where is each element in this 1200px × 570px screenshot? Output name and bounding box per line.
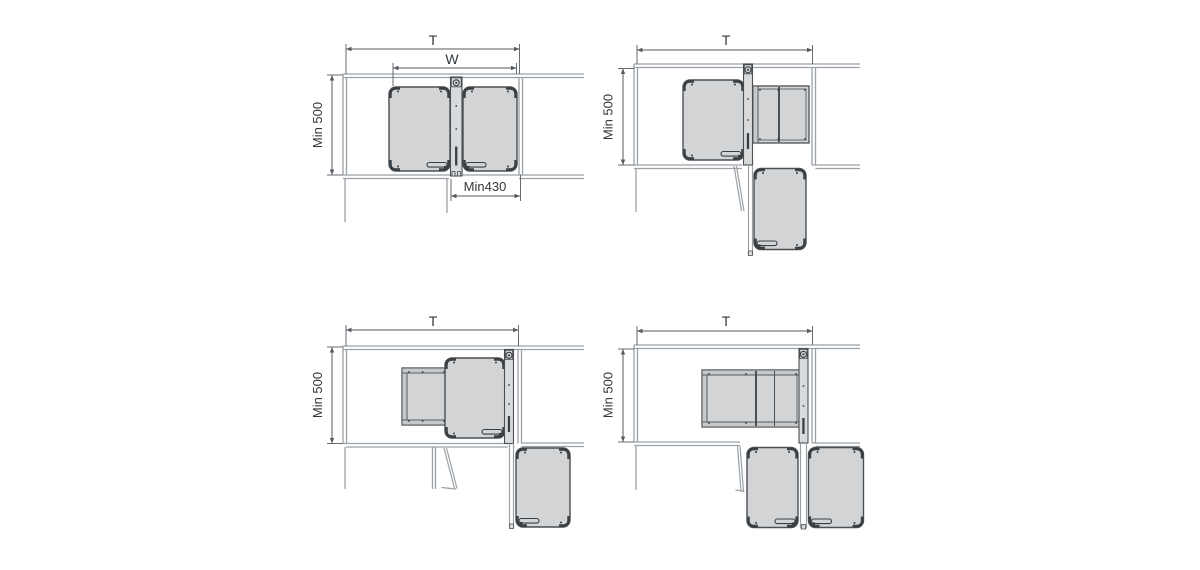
arrowhead-left-icon <box>451 194 457 198</box>
fixing-dot <box>759 138 761 140</box>
dimension-Min500: Min 500 <box>310 75 343 175</box>
tray-front-view <box>445 358 505 438</box>
tray-handle-stub <box>738 155 740 158</box>
tray-rim-band <box>753 86 758 143</box>
dimension-label: Min 500 <box>310 102 325 148</box>
tray-body <box>753 86 809 143</box>
fixing-dot <box>560 522 562 524</box>
tray-front-view <box>747 448 798 528</box>
tray-front-view <box>809 448 864 528</box>
tray-handle-stub <box>758 244 760 247</box>
pivot-center-dot <box>508 354 510 356</box>
tray-handle-stub <box>792 522 794 525</box>
tray-side-view <box>702 370 800 427</box>
arrowhead-bottom-icon <box>621 437 625 443</box>
arrowhead-right-icon <box>807 48 813 52</box>
dimension-label: Min 500 <box>601 94 616 140</box>
fixing-dot <box>455 105 457 107</box>
pivot-center-dot <box>747 69 749 71</box>
rail-body <box>744 64 753 165</box>
dimension-label: T <box>429 32 438 48</box>
fixing-dot <box>747 119 749 121</box>
fixing-dot <box>745 422 747 424</box>
fixing-dot <box>795 373 797 375</box>
tray-front-view <box>683 80 744 160</box>
rail-extension-arm <box>801 443 807 529</box>
tray-body <box>747 448 798 528</box>
rail-foot <box>452 172 455 177</box>
tray-body <box>754 169 806 250</box>
arrowhead-left-icon <box>637 329 643 333</box>
fixing-dot <box>755 522 757 524</box>
arrowhead-left-icon <box>637 48 643 52</box>
pivot-rail <box>744 64 753 256</box>
tray-body <box>402 368 448 425</box>
rail-extension-foot <box>802 525 806 530</box>
open-door-line <box>442 448 458 489</box>
arrowhead-left-icon <box>346 47 352 51</box>
panel-top-right: TMin 500 <box>601 32 861 256</box>
open-door-line <box>736 446 745 492</box>
rail-foot <box>458 172 461 177</box>
fixing-dot <box>455 128 457 130</box>
fixing-dot <box>508 384 510 386</box>
panel-top-left: TWMin 500Min430 <box>310 32 584 222</box>
fixing-dot <box>453 433 455 435</box>
fixing-dot <box>777 138 779 140</box>
fixing-dot <box>796 172 798 174</box>
fixing-dot <box>397 91 399 93</box>
arrowhead-top-icon <box>330 347 334 353</box>
fixing-dot <box>508 403 510 405</box>
fixing-dot <box>817 451 819 453</box>
dimension-T: T <box>346 313 519 346</box>
fixing-dot <box>788 451 790 453</box>
fixing-dot <box>691 155 693 157</box>
fixing-dot <box>762 172 764 174</box>
dimension-label: T <box>429 313 438 329</box>
fixing-dot <box>734 84 736 86</box>
rail-extension-arm <box>510 444 514 529</box>
corner-unit-installation-diagram: TWMin 500Min430TMin 500TMin 500TMin 500 <box>0 0 1200 570</box>
tray-body <box>683 80 744 160</box>
tray-handle-stub <box>444 166 446 169</box>
arrowhead-top-icon <box>330 75 334 81</box>
fixing-dot <box>422 371 424 373</box>
fixing-dot <box>777 89 779 91</box>
fixing-dot <box>507 91 509 93</box>
fixing-dot <box>795 422 797 424</box>
fixing-dot <box>691 84 693 86</box>
diagram-line <box>447 448 458 489</box>
arrowhead-bottom-icon <box>330 170 334 176</box>
fixing-dot <box>408 420 410 422</box>
tray-front-view <box>516 448 570 527</box>
tray-body <box>445 358 505 438</box>
fixing-dot <box>796 244 798 246</box>
tray-body <box>389 87 450 171</box>
tray-handle-stub <box>499 433 501 436</box>
tray-body <box>516 448 570 527</box>
arrowhead-left-icon <box>346 328 352 332</box>
tray-handle-stub <box>467 166 469 169</box>
dimension-label: T <box>722 32 731 48</box>
tray-body <box>809 448 864 528</box>
fixing-dot <box>453 362 455 364</box>
fixing-dot <box>854 522 856 524</box>
panel-bottom-right: TMin 500 <box>601 313 864 529</box>
arrowhead-bottom-icon <box>621 160 625 166</box>
fixing-dot <box>804 89 806 91</box>
rail-slot <box>508 416 510 432</box>
figure: TWMin 500Min430TMin 500TMin 500TMin 500 <box>0 0 1200 570</box>
tray-body <box>463 87 517 171</box>
open-door-line <box>734 166 744 211</box>
fixing-dot <box>408 371 410 373</box>
arrowhead-bottom-icon <box>330 438 334 444</box>
fixing-dot <box>747 98 749 100</box>
dimension-Min500: Min 500 <box>310 347 343 444</box>
fixing-dot <box>708 373 710 375</box>
tray-side-view <box>402 368 448 425</box>
fixing-dot <box>759 89 761 91</box>
tray-handle-stub <box>813 522 815 525</box>
dimension-label: W <box>445 51 459 67</box>
dimension-Min500: Min 500 <box>601 349 635 442</box>
panel-bottom-left: TMin 500 <box>310 313 584 529</box>
dimension-T: T <box>637 313 813 345</box>
tray-front-view <box>389 87 450 171</box>
pivot-center-dot <box>455 82 457 84</box>
dimension-label: T <box>722 313 731 329</box>
tray-rim-band <box>702 370 800 375</box>
fixing-dot <box>524 452 526 454</box>
tray-side-view <box>753 86 809 143</box>
rail-slot <box>747 133 749 149</box>
arrowhead-top-icon <box>621 349 625 355</box>
fixing-dot <box>440 91 442 93</box>
arrowhead-right-icon <box>511 66 517 70</box>
fixing-dot <box>854 451 856 453</box>
arrowhead-right-icon <box>515 194 521 198</box>
dimension-Min500: Min 500 <box>601 69 635 166</box>
fixing-dot <box>397 166 399 168</box>
diagram-line <box>444 448 455 489</box>
rail-extension-arm <box>749 165 753 256</box>
pivot-rail <box>505 350 514 529</box>
fixing-dot <box>495 362 497 364</box>
dimension-label: Min430 <box>464 179 507 194</box>
pivot-rail <box>799 349 808 530</box>
arrowhead-right-icon <box>514 47 520 51</box>
rail-slot <box>802 418 804 434</box>
dimension-label: Min 500 <box>601 372 616 418</box>
dimension-Min430: Min430 <box>451 175 521 201</box>
rail-slot <box>455 147 457 166</box>
tray-rim-band <box>702 370 707 427</box>
tray-handle-stub <box>520 522 522 525</box>
fixing-dot <box>471 91 473 93</box>
fixing-dot <box>745 373 747 375</box>
arrowhead-right-icon <box>807 329 813 333</box>
arrowhead-top-icon <box>621 69 625 75</box>
fixing-dot <box>803 405 805 407</box>
fixing-dot <box>803 385 805 387</box>
fixing-dot <box>560 452 562 454</box>
fixing-dot <box>507 166 509 168</box>
pivot-rail <box>451 77 463 176</box>
fixing-dot <box>755 451 757 453</box>
tray-rim-band <box>702 422 800 427</box>
fixing-dot <box>422 420 424 422</box>
tray-front-view <box>754 169 806 250</box>
dimension-T: T <box>637 32 813 64</box>
fixing-dot <box>804 138 806 140</box>
pivot-center-dot <box>802 353 804 355</box>
arrowhead-left-icon <box>393 66 399 70</box>
arrowhead-right-icon <box>513 328 519 332</box>
tray-front-view <box>463 87 517 171</box>
rail-extension-foot <box>510 524 514 529</box>
rail-extension-foot <box>749 251 753 256</box>
tray-rim-band <box>402 368 407 425</box>
dimension-label: Min 500 <box>310 372 325 418</box>
tray-body <box>702 370 800 427</box>
fixing-dot <box>708 422 710 424</box>
